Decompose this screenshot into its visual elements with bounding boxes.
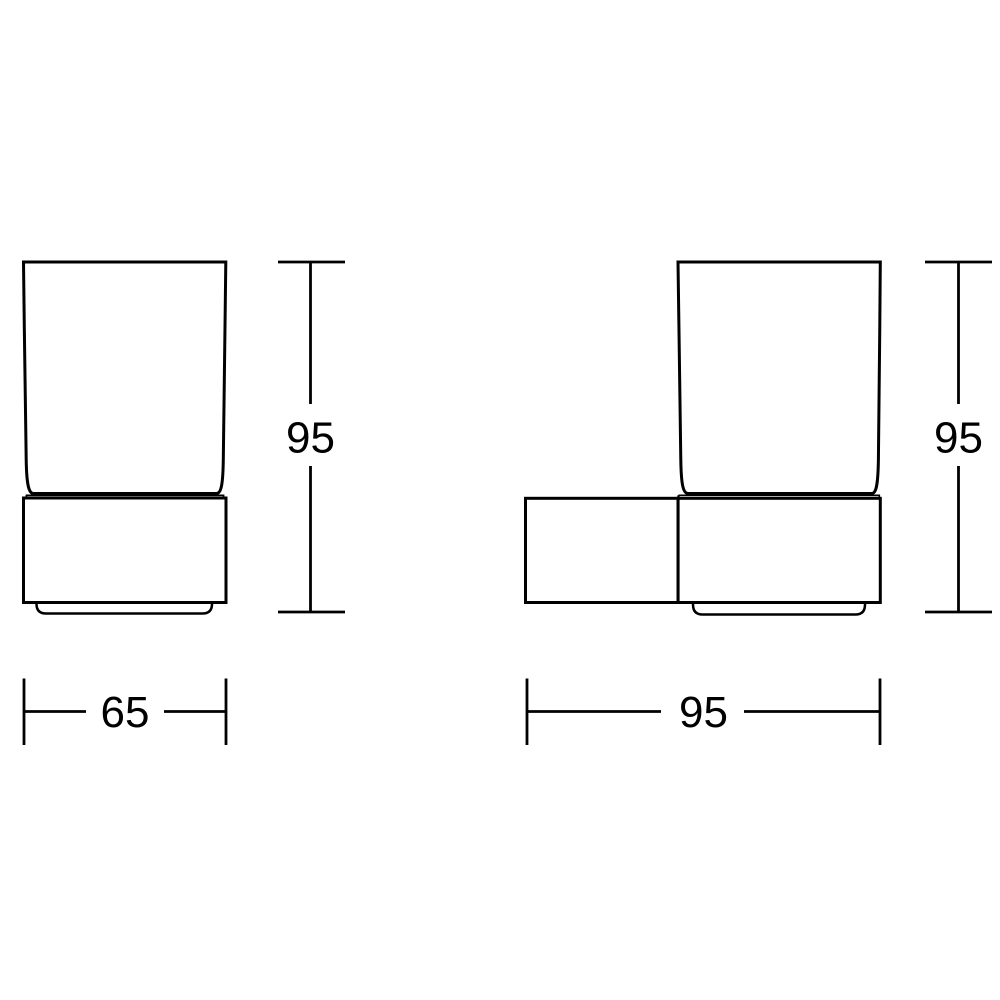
svg-text:65: 65	[101, 688, 150, 737]
svg-text:95: 95	[934, 414, 983, 463]
svg-text:95: 95	[286, 414, 335, 463]
svg-text:95: 95	[679, 688, 728, 737]
